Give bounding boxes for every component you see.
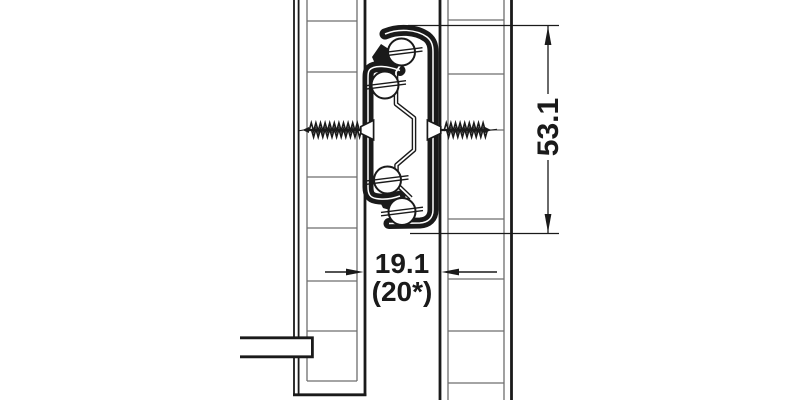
arrowhead-left-icon xyxy=(442,269,460,276)
panel-hatch-segments xyxy=(307,21,357,331)
arrowhead-up-icon xyxy=(545,27,552,46)
slide-cross-section xyxy=(299,30,497,225)
drawer-runner-section-drawing: 53.1 19.1 (20*) xyxy=(0,0,800,400)
cabinet-side-panel xyxy=(440,0,512,400)
drawer-bottom-panel xyxy=(240,338,312,357)
arrowhead-down-icon xyxy=(545,214,552,233)
technical-drawing-canvas: 53.1 19.1 (20*) xyxy=(0,0,800,400)
panel-hatch-segments xyxy=(448,20,504,383)
dimension-label-20-star: (20*) xyxy=(372,276,433,307)
mounting-screw-left xyxy=(299,120,374,140)
dimension-installation-space: 19.1 (20*) xyxy=(325,248,497,307)
dimension-label-53-1: 53.1 xyxy=(532,98,565,156)
drawer-bottom-outline xyxy=(240,338,312,357)
dimension-label-19-1: 19.1 xyxy=(375,248,430,279)
arrowhead-right-icon xyxy=(346,269,364,276)
